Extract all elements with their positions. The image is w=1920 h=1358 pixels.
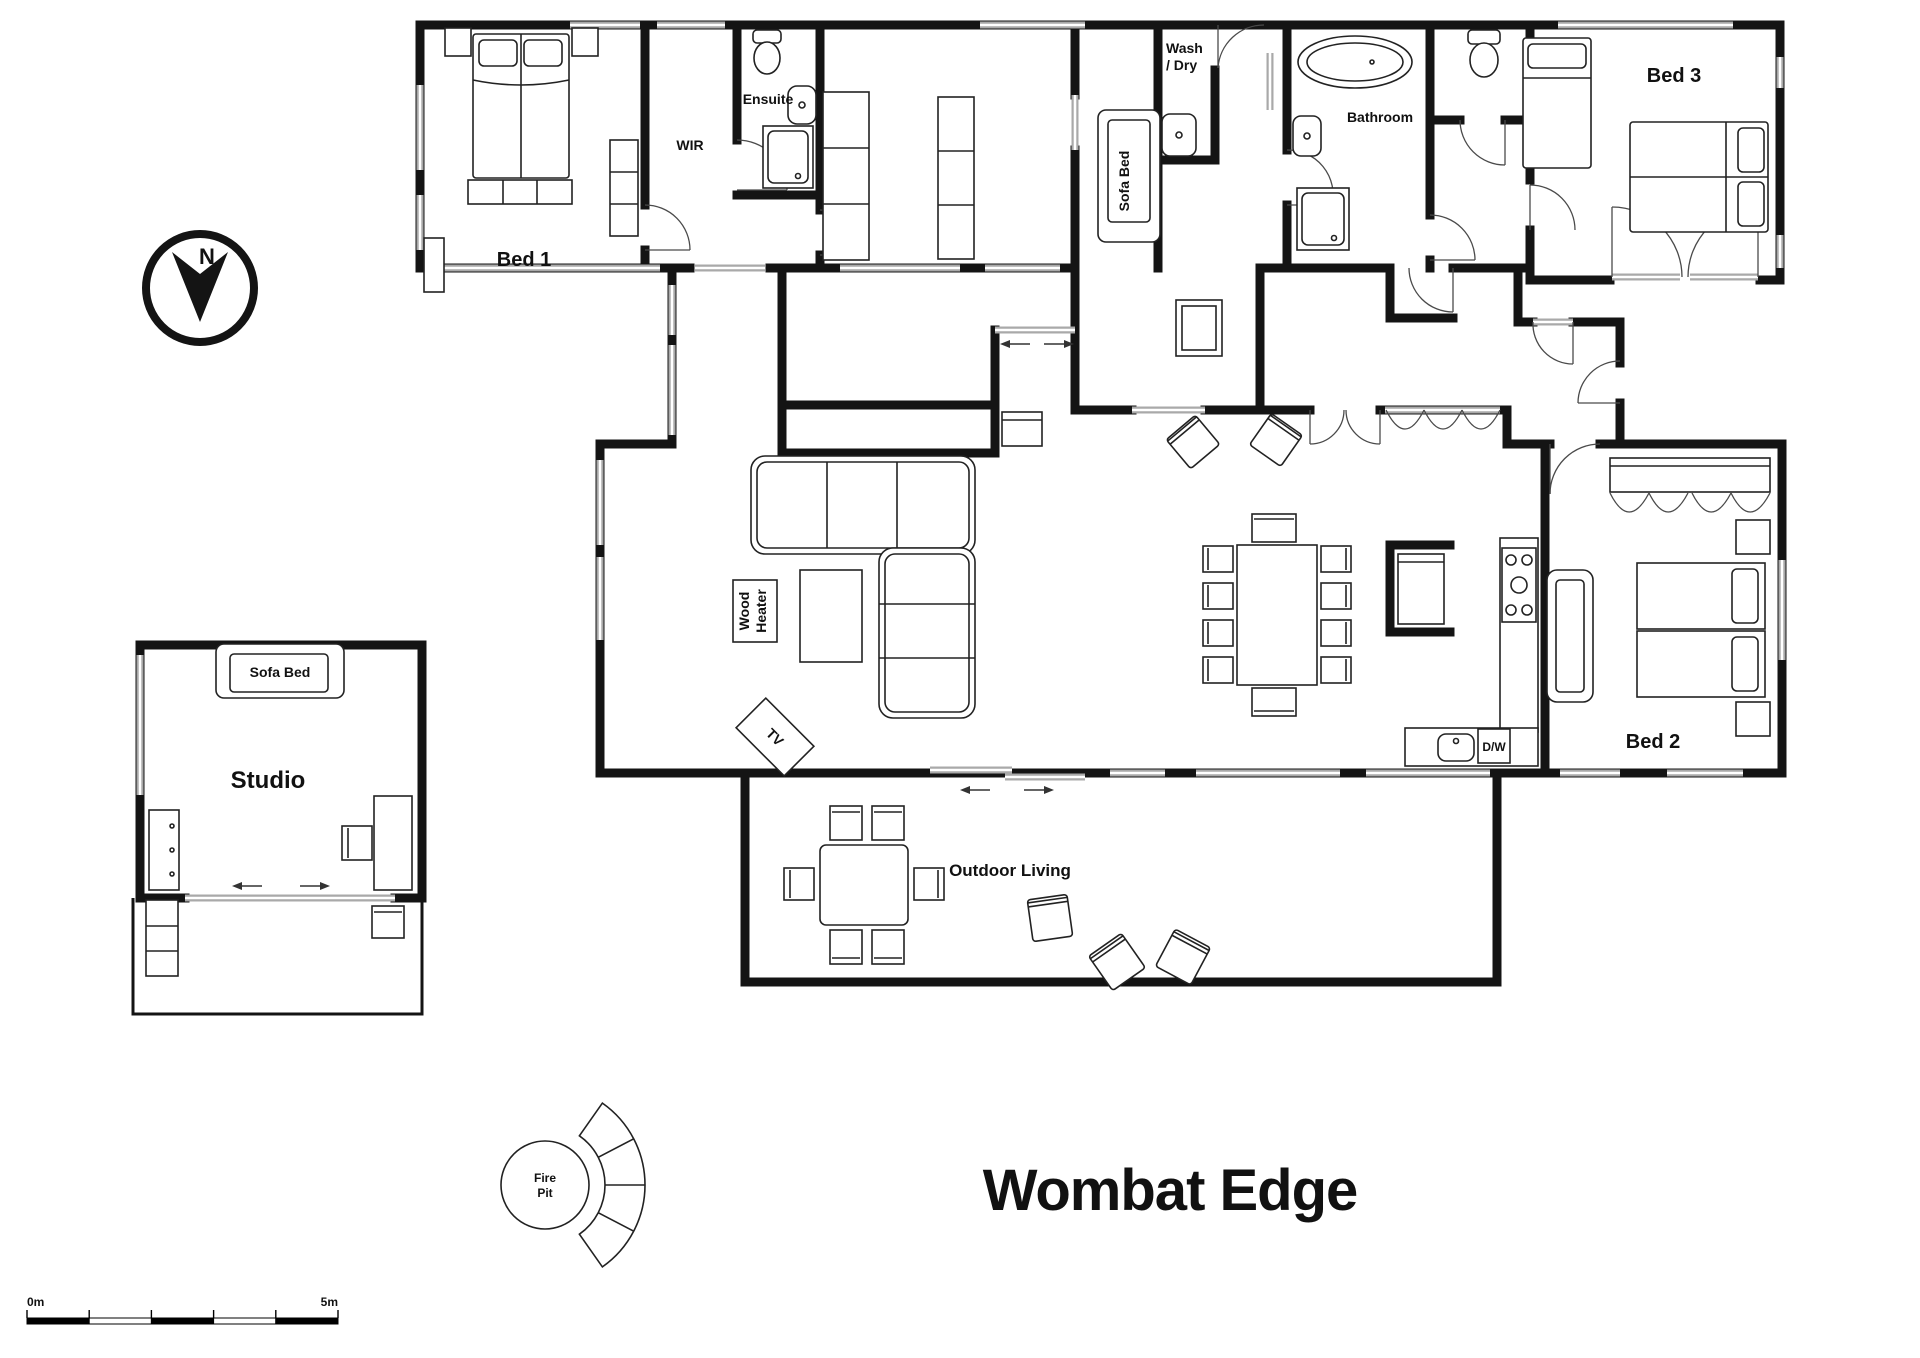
bed2-furniture: [1547, 458, 1770, 736]
fire-pit: [501, 1103, 645, 1267]
page-title: Wombat Edge: [983, 1158, 1358, 1223]
floor-plan-canvas: N Bed 1 WIR Ensuite Wash / Dry Sofa Bed …: [0, 0, 1920, 1358]
bathroom-fixtures: [1293, 30, 1500, 250]
label-fire-pit-2: Pit: [537, 1186, 552, 1200]
studio-furniture: [146, 644, 412, 976]
room-label-bed1: Bed 1: [497, 249, 551, 271]
scale-end-label: 5m: [321, 1295, 338, 1309]
room-label-wash-dry-1: Wash: [1166, 40, 1203, 56]
compass-north-label: N: [199, 244, 215, 269]
room-label-sofa-bed-nook: Sofa Bed: [1116, 151, 1132, 212]
room-label-bathroom: Bathroom: [1347, 109, 1413, 125]
room-label-wir: WIR: [676, 137, 703, 153]
room-label-ensuite: Ensuite: [743, 91, 794, 107]
scale-bar: 0m 5m: [27, 1295, 338, 1324]
room-label-studio: Studio: [231, 767, 306, 794]
bed3-furniture: [1523, 38, 1768, 232]
living-furniture: [733, 412, 1042, 776]
label-fire-pit-1: Fire: [534, 1171, 556, 1185]
kitchen-fixtures: [1398, 538, 1538, 766]
outdoor-furniture: [784, 806, 1211, 991]
label-dishwasher: D/W: [1482, 740, 1506, 754]
room-label-wash-dry-2: / Dry: [1166, 57, 1197, 73]
north-compass: N: [146, 234, 254, 342]
label-studio-sofa-bed: Sofa Bed: [250, 664, 311, 680]
label-wood-heater-2: Heater: [753, 589, 769, 633]
rumpus-furniture: [823, 92, 974, 260]
scale-start-label: 0m: [27, 1295, 44, 1309]
ensuite-fixtures: [753, 30, 816, 188]
room-label-bed2: Bed 2: [1626, 731, 1680, 753]
floor-plan: N Bed 1 WIR Ensuite Wash / Dry Sofa Bed …: [0, 0, 1920, 1358]
dining-furniture: [1166, 414, 1351, 716]
room-label-bed3: Bed 3: [1647, 65, 1701, 87]
label-wood-heater-1: Wood: [736, 592, 752, 631]
room-label-outdoor-living: Outdoor Living: [949, 861, 1071, 880]
